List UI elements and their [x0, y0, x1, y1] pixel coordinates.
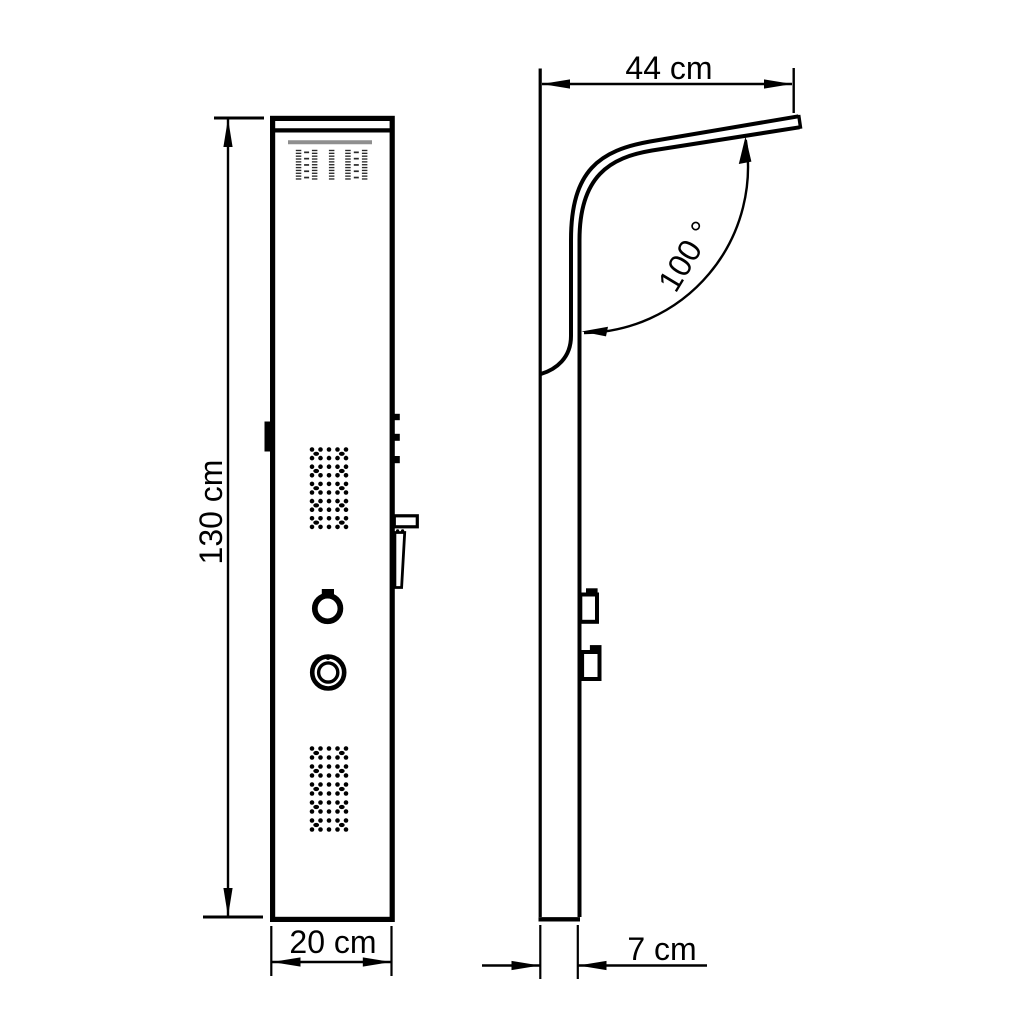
svg-text:100 °: 100 ° — [651, 215, 721, 298]
svg-text:130 cm: 130 cm — [193, 460, 229, 565]
svg-text:7 cm: 7 cm — [627, 931, 696, 967]
svg-text:44 cm: 44 cm — [625, 50, 712, 86]
svg-text:20 cm: 20 cm — [289, 924, 376, 960]
